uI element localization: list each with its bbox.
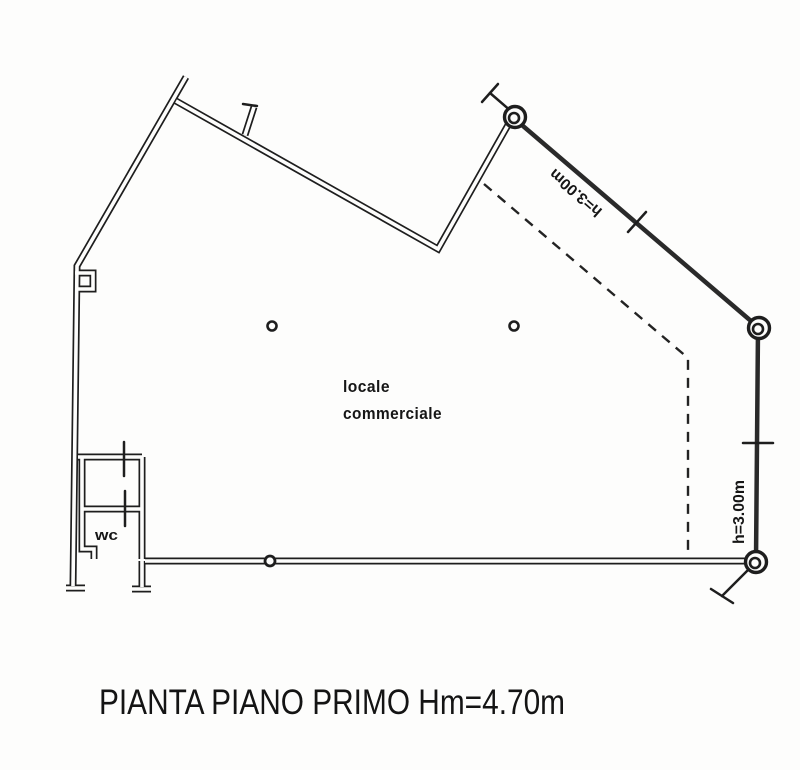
pivot-knob-bottom bbox=[746, 552, 767, 573]
dimension-label-right-parapet: h=3.00m bbox=[731, 480, 748, 544]
pivot-knob-inner bbox=[750, 558, 760, 568]
plan-title: PIANTA PIANO PRIMO Hm=4.70m bbox=[99, 683, 565, 722]
floor-plan-drawing: locale commerciale wc h=3.00m h=3.00m PI… bbox=[0, 0, 800, 770]
pivot-knob-top bbox=[505, 107, 526, 128]
walls-outline bbox=[66, 77, 748, 589]
pivot-knob-inner bbox=[509, 113, 519, 123]
pivot-knob-inner bbox=[753, 324, 763, 334]
wall-group bbox=[66, 77, 748, 589]
column-marker-left bbox=[268, 322, 277, 331]
room-label-locale: locale bbox=[343, 377, 390, 396]
tick-marks bbox=[243, 84, 773, 603]
pivot-knob-middle bbox=[749, 318, 770, 339]
room-label-commerciale: commerciale bbox=[343, 404, 442, 423]
door-ticks bbox=[124, 442, 125, 526]
column-marker-right bbox=[510, 322, 519, 331]
tick-cap-bottom bbox=[711, 589, 733, 603]
tick-cap-spur bbox=[243, 104, 257, 106]
room-label-wc: wc bbox=[94, 527, 118, 544]
walls-core bbox=[66, 77, 748, 589]
door-hinge-marker bbox=[265, 556, 275, 566]
